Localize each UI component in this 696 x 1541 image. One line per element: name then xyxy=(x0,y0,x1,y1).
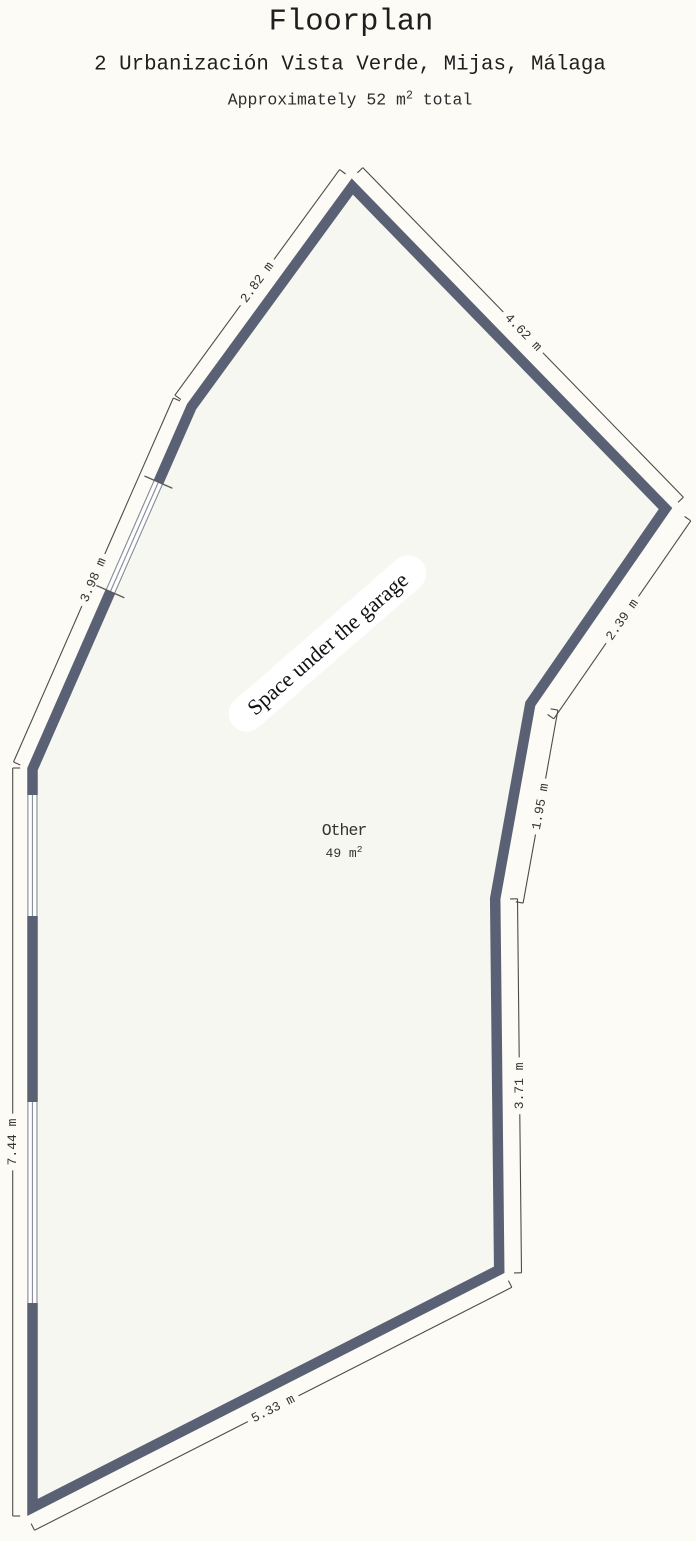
svg-text:3.71 m: 3.71 m xyxy=(512,1062,527,1109)
svg-text:Other: Other xyxy=(322,821,367,840)
svg-text:Approximately 52 m2 total: Approximately 52 m2 total xyxy=(228,90,473,110)
svg-text:7.44 m: 7.44 m xyxy=(5,1118,20,1165)
svg-text:Floorplan: Floorplan xyxy=(269,6,434,40)
svg-text:2 Urbanización Vista Verde, Mi: 2 Urbanización Vista Verde, Mijas, Málag… xyxy=(94,54,606,77)
